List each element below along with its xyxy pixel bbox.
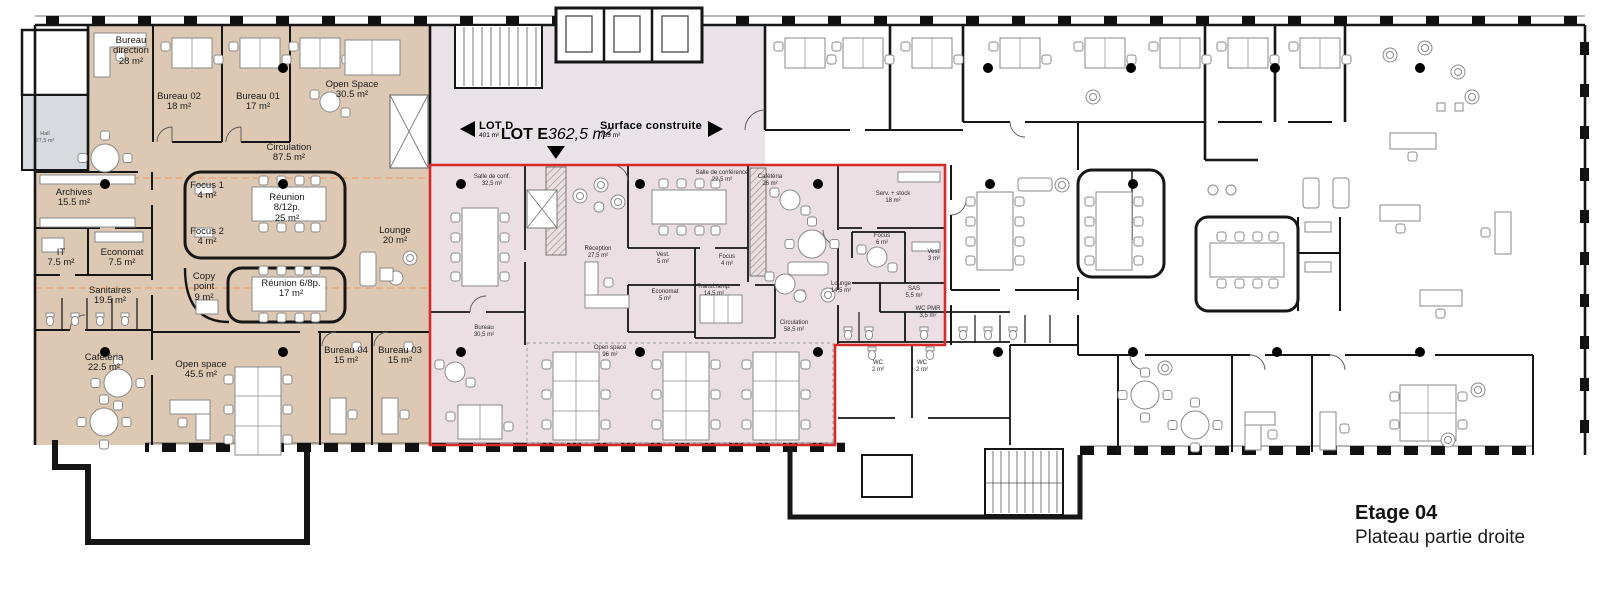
marker-lot-e: LOT E362,5 m² — [501, 126, 611, 159]
room-label-hall: Hall27,5 m² — [23, 131, 67, 144]
room-label-focus-2: Focus 24 m² — [183, 227, 231, 248]
room-label-serv-stock: Serv. + stock18 m² — [870, 191, 916, 205]
room-label-bureau-02: Bureau 0218 m² — [144, 92, 214, 113]
room-label-focus-1: Focus 14 m² — [183, 181, 231, 202]
room-label-cafeteria-lot-e: Cafétéria26 m² — [753, 174, 787, 188]
room-label-cafeteria: Cafétéria22.5 m² — [73, 353, 135, 374]
room-label-it: IT7.5 m² — [39, 248, 83, 269]
room-label-open-space: Open Space30.5 m² — [312, 80, 392, 101]
room-label-salle-de-conference: Salle de conférence22,5 m² — [692, 170, 752, 184]
room-label-salle-de-conf: Salle de conf.32,5 m² — [469, 174, 515, 188]
arrow-down-icon — [547, 146, 565, 159]
room-label-focus-6: Focus6 m² — [869, 233, 895, 247]
lot-e-label: LOT E — [501, 126, 548, 143]
room-label-economat: Economat7.5 m² — [91, 248, 153, 269]
room-label-bureau-01: Bureau 0117 m² — [223, 92, 293, 113]
page-title: Etage 04 — [1355, 501, 1525, 526]
arrow-left-icon — [460, 121, 475, 137]
surface-area: 733 m² — [600, 132, 702, 139]
room-label-lounge-lot-e: Lounge14,5 m² — [824, 281, 858, 295]
page-subtitle: Plateau partie droite — [1355, 526, 1525, 550]
room-label-wc-pmr: WC PMR3,5 m² — [911, 306, 945, 320]
floorplan-page: Bureau direction28 m² Bureau 0218 m² Bur… — [0, 0, 1600, 591]
room-label-economat-5: Economat5 m² — [647, 289, 683, 303]
room-label-circulation-lot-e: Circulation58,5 m² — [773, 320, 815, 334]
room-label-bureau-direction: Bureau direction28 m² — [99, 36, 163, 67]
room-label-open-space-lot-e: Open space96 m² — [589, 345, 631, 359]
room-label-wc-2: WC2 m² — [910, 360, 934, 374]
room-label-wc-1: WC2 m² — [866, 360, 890, 374]
room-label-reception: Réception27,5 m² — [578, 246, 618, 260]
arrow-right-icon — [708, 121, 723, 137]
room-label-circulation: Circulation87.5 m² — [249, 143, 329, 164]
room-label-archives: Archives15.5 m² — [39, 188, 109, 209]
room-label-sanitaires: Sanitaires19.5 m² — [78, 286, 142, 307]
surface-label: Surface construite — [600, 120, 702, 132]
room-label-sas: SAS5,5 m² — [899, 286, 929, 300]
room-label-vest-5: Vest.5 m² — [650, 252, 676, 266]
room-label-bureau-lot-e: Bureau30,5 m² — [467, 325, 501, 339]
room-label-bureau-03: Bureau 0315 m² — [370, 346, 430, 367]
room-label-lounge: Lounge20 m² — [368, 226, 422, 247]
room-label-bureau-04: Bureau 0415 m² — [316, 346, 376, 367]
room-label-focus-4: Focus4 m² — [714, 254, 740, 268]
title-block: Etage 04 Plateau partie droite — [1355, 501, 1525, 550]
room-label-reunion-812: Réunion 8/12p.25 m² — [259, 193, 315, 224]
room-label-transf-amp: Transf./amp.14,5 m² — [693, 284, 735, 298]
room-label-open-space-2: Open space45.5 m² — [164, 360, 238, 381]
room-label-vest-3: Vest.3 m² — [922, 249, 946, 263]
marker-surface-construite: Surface construite733 m² — [600, 120, 723, 139]
room-label-copy-point: Copy point9 m² — [184, 272, 224, 303]
room-label-reunion-68: Réunion 6/8p.17 m² — [245, 279, 337, 300]
